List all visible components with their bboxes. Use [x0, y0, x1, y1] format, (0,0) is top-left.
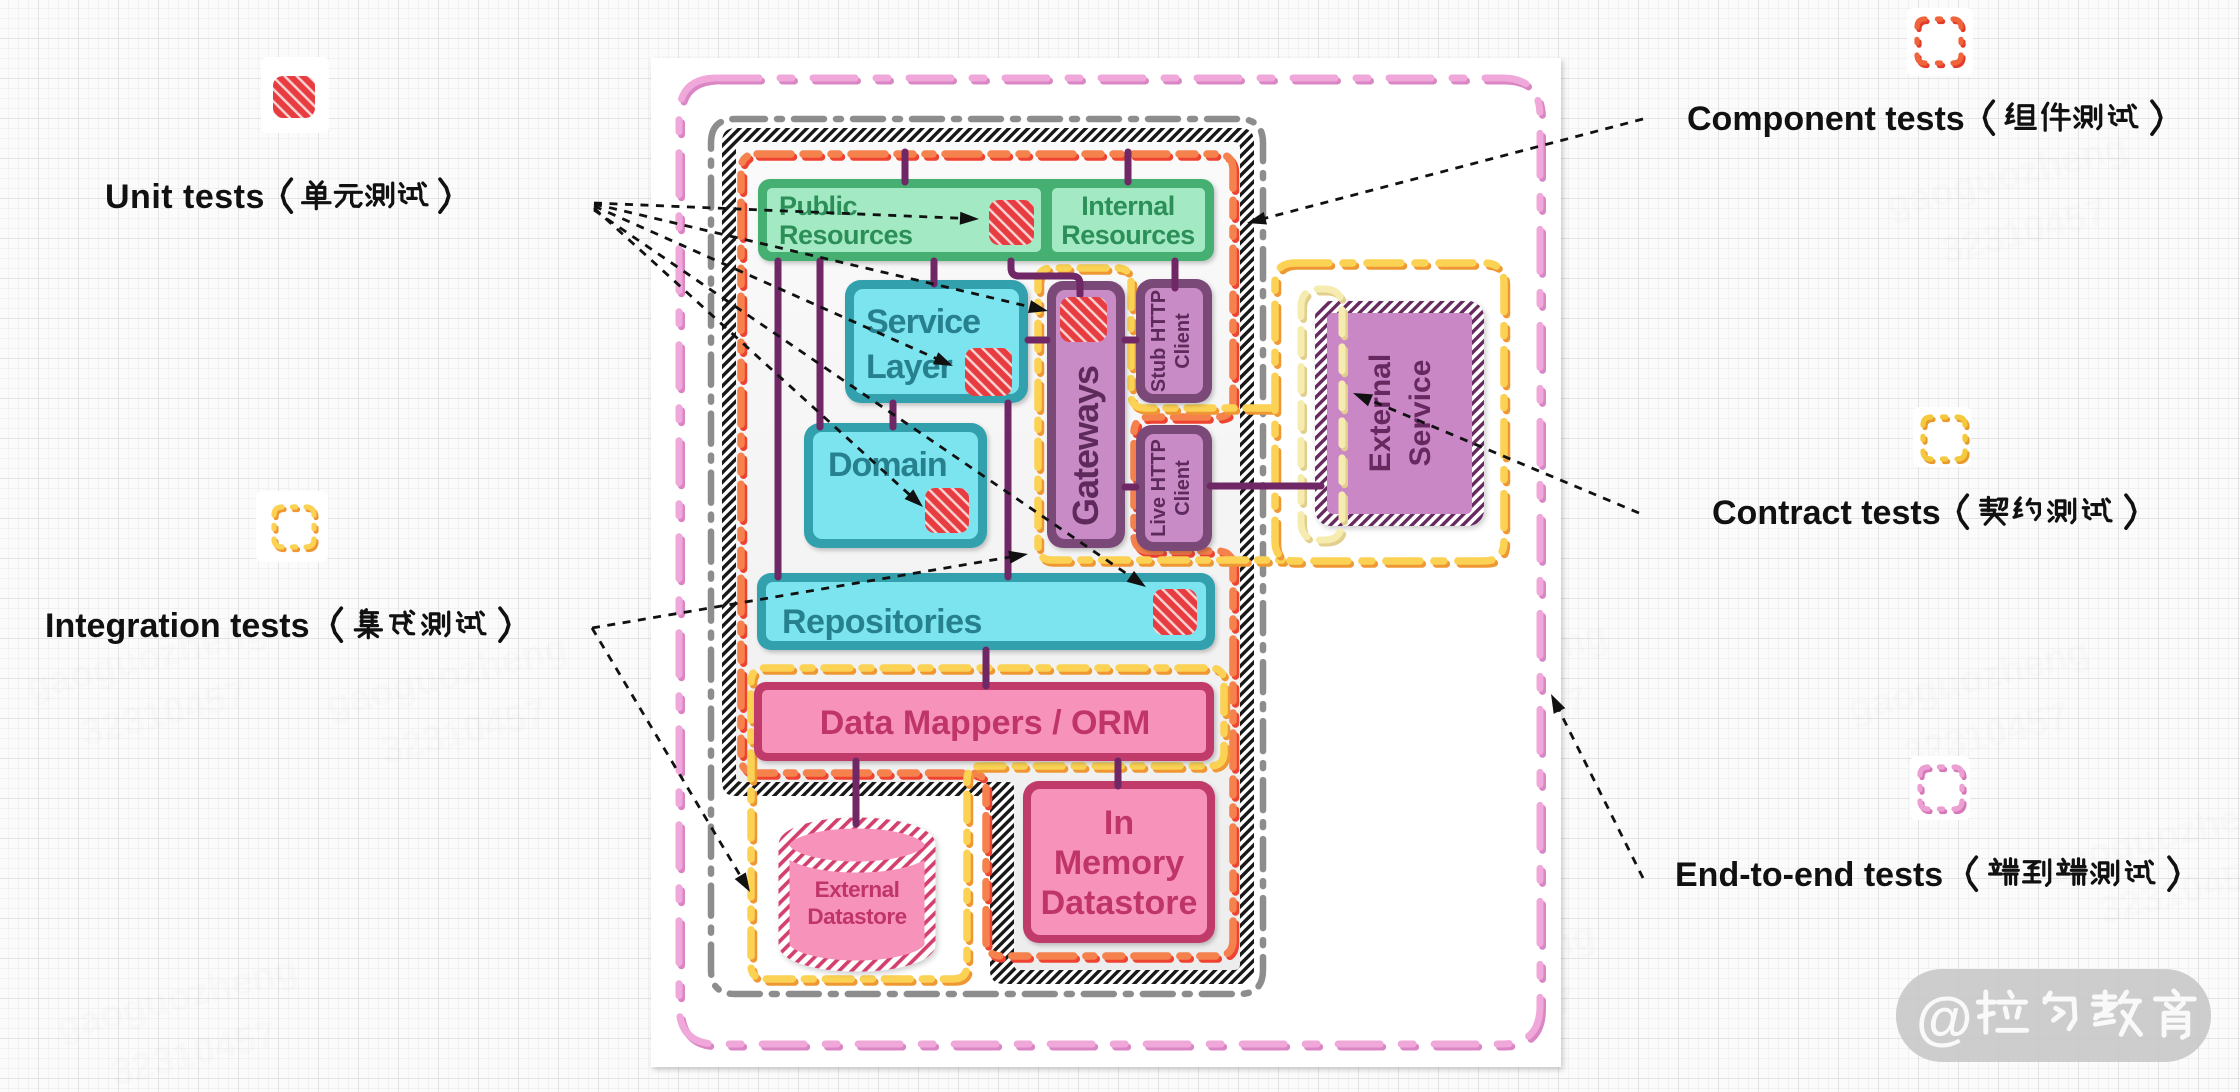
svg-text:Component tests: Component tests — [1687, 100, 1965, 138]
svg-text:Public: Public — [779, 191, 857, 221]
svg-text:Integration tests: Integration tests — [45, 607, 309, 645]
svg-text:Repositories: Repositories — [782, 603, 982, 641]
svg-text:Gateways: Gateways — [1065, 366, 1106, 526]
svg-text:Client: Client — [1172, 460, 1194, 516]
svg-text:Data Mappers / ORM: Data Mappers / ORM — [820, 704, 1151, 742]
svg-text:Datastore: Datastore — [1041, 884, 1198, 922]
svg-text:Resources: Resources — [1061, 220, 1195, 250]
svg-text:Resources: Resources — [779, 220, 913, 250]
svg-text:Contract tests: Contract tests — [1712, 494, 1941, 532]
svg-text:Service: Service — [1404, 360, 1437, 467]
svg-text:Memory: Memory — [1054, 844, 1184, 882]
svg-text:Internal: Internal — [1081, 191, 1175, 221]
svg-text:In: In — [1104, 804, 1134, 842]
svg-text:External: External — [815, 877, 900, 902]
svg-text:Live HTTP: Live HTTP — [1148, 439, 1170, 537]
svg-text:External: External — [1364, 354, 1397, 472]
svg-text:Datastore: Datastore — [807, 904, 906, 929]
svg-text:Domain: Domain — [828, 446, 947, 484]
svg-text:@: @ — [1916, 986, 1973, 1051]
svg-text:Client: Client — [1172, 313, 1194, 369]
svg-text:Stub HTTP: Stub HTTP — [1148, 290, 1170, 392]
svg-text:End-to-end tests: End-to-end tests — [1675, 856, 1943, 894]
svg-text:Unit tests: Unit tests — [105, 178, 265, 216]
